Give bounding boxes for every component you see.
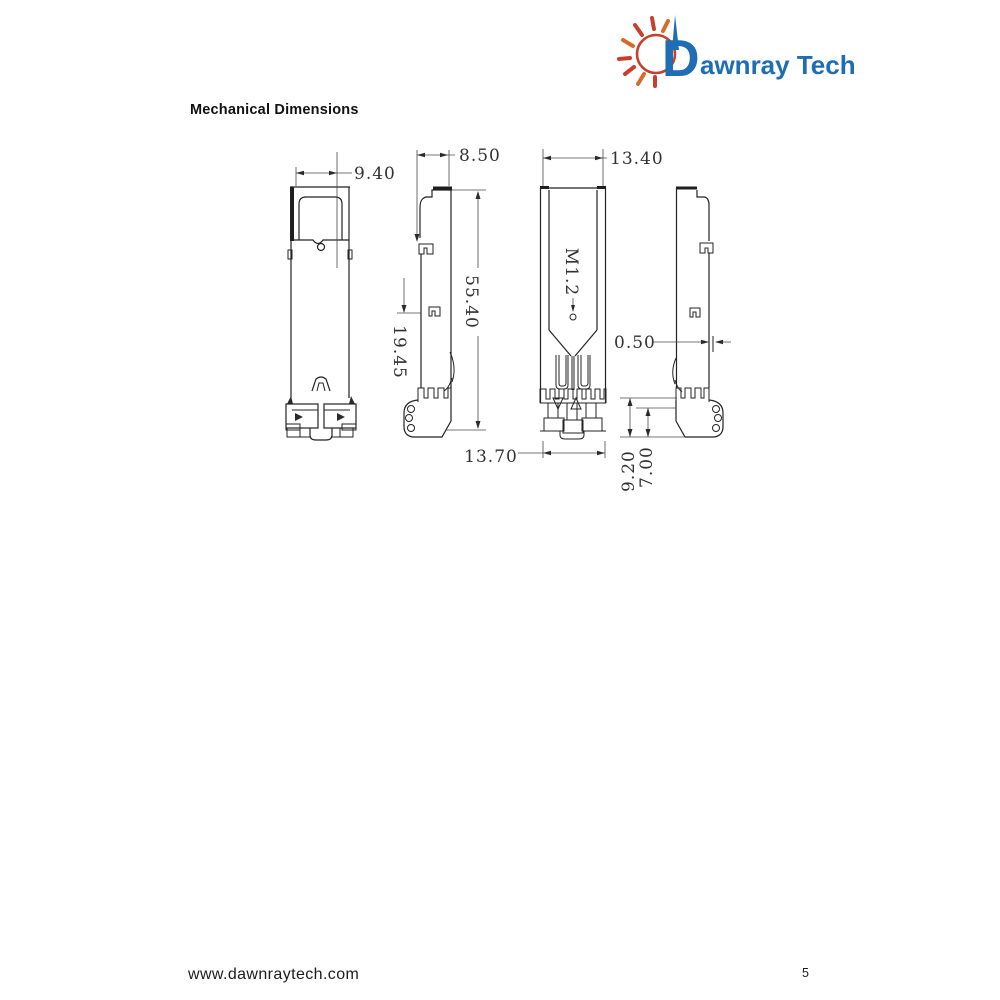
view-front xyxy=(286,187,356,440)
dim-text-side-top-width: 8.50 xyxy=(459,146,501,166)
mechanical-drawing: 9.40 8.5 xyxy=(0,0,1000,1000)
view-side-right xyxy=(673,187,723,438)
dim-text-thread: M1.2 xyxy=(561,248,581,296)
dim-text-body-width: 13.40 xyxy=(610,149,664,169)
view-bottom: M1.2 xyxy=(540,186,606,439)
dim-text-connector-width: 13.70 xyxy=(464,447,518,467)
dim-overall-length: 55.40 xyxy=(446,190,486,430)
dim-body-width: 13.40 xyxy=(543,149,664,186)
dim-text-foot-inner: 7.00 xyxy=(637,446,657,488)
view-side-left xyxy=(404,187,454,438)
dim-foot-inner: 7.00 xyxy=(636,408,676,488)
document-page: D awnray Tech Mechanical Dimensions xyxy=(0,0,1000,1000)
dim-text-overall-length: 55.40 xyxy=(461,275,481,329)
dim-thread-callout: M1.2 xyxy=(561,248,581,320)
dim-text-foot-outer: 9.20 xyxy=(619,450,639,492)
page-number: 5 xyxy=(802,966,809,980)
dim-side-top-width: 8.50 xyxy=(415,146,501,242)
dim-upper-length: 19.45 xyxy=(389,278,421,379)
dim-text-upper-length: 19.45 xyxy=(389,325,409,379)
dim-text-wall-thickness: 0.50 xyxy=(614,333,656,353)
dim-cage-width: 9.40 xyxy=(296,152,396,268)
dim-text-cage-width: 9.40 xyxy=(354,164,396,184)
dim-connector-width: 13.70 xyxy=(464,441,605,467)
footer-url: www.dawnraytech.com xyxy=(188,966,359,984)
